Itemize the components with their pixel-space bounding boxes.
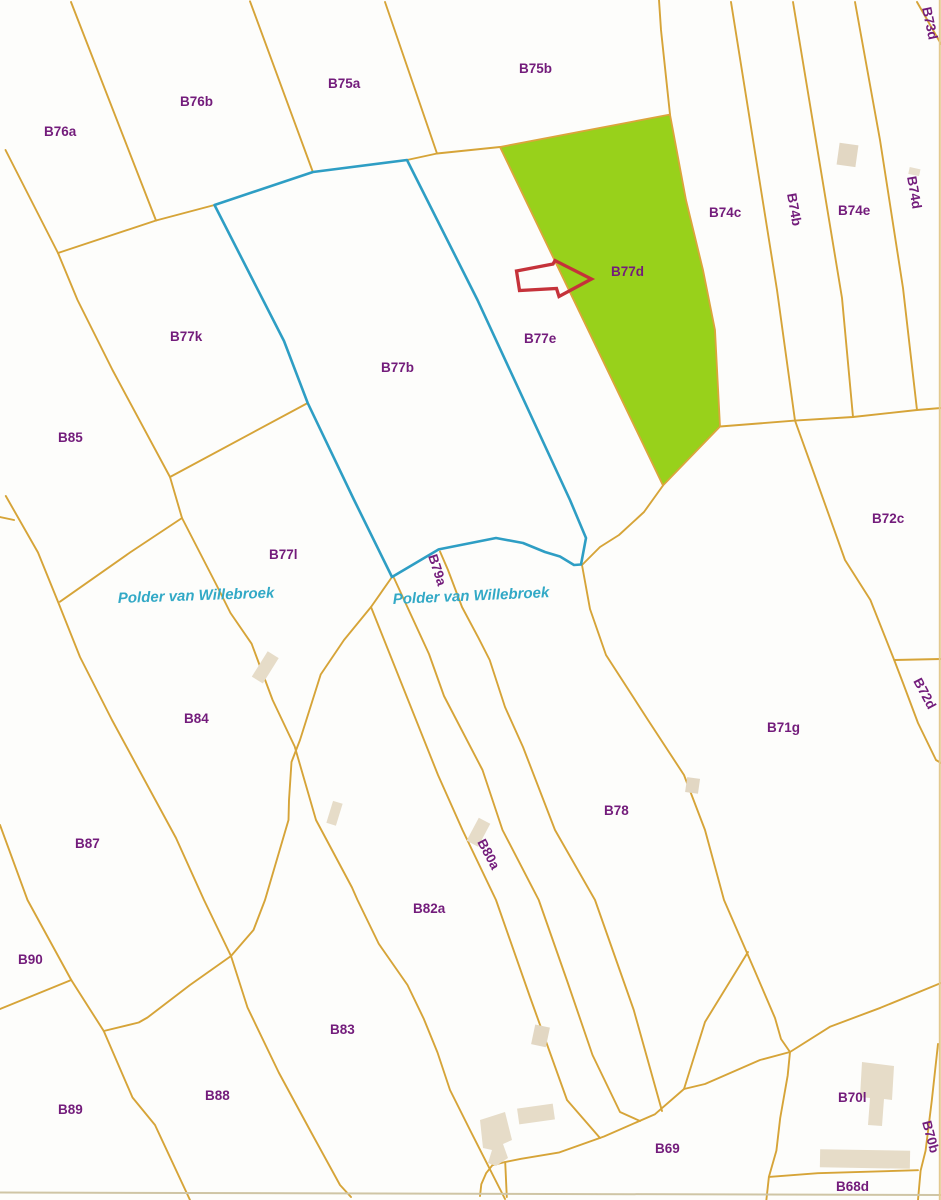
svg-text:B82a: B82a bbox=[413, 901, 446, 916]
svg-text:B88: B88 bbox=[205, 1088, 230, 1103]
svg-text:B89: B89 bbox=[58, 1102, 83, 1117]
svg-text:B77d: B77d bbox=[611, 264, 644, 279]
svg-text:B72c: B72c bbox=[872, 511, 905, 526]
svg-text:B68d: B68d bbox=[836, 1179, 869, 1194]
svg-text:B74e: B74e bbox=[838, 203, 871, 218]
svg-text:B77e: B77e bbox=[524, 331, 557, 346]
svg-text:B69: B69 bbox=[655, 1141, 680, 1156]
svg-text:B87: B87 bbox=[75, 836, 100, 851]
svg-text:B70l: B70l bbox=[838, 1090, 867, 1105]
svg-text:B75a: B75a bbox=[328, 76, 361, 91]
svg-text:B71g: B71g bbox=[767, 720, 800, 735]
svg-text:B76b: B76b bbox=[180, 94, 213, 109]
svg-text:B77k: B77k bbox=[170, 329, 203, 344]
svg-text:B77l: B77l bbox=[269, 547, 298, 562]
svg-text:B83: B83 bbox=[330, 1022, 355, 1037]
svg-text:B78: B78 bbox=[604, 803, 629, 818]
svg-text:B85: B85 bbox=[58, 430, 83, 445]
svg-text:B74c: B74c bbox=[709, 205, 742, 220]
svg-text:B90: B90 bbox=[18, 952, 43, 967]
svg-text:B76a: B76a bbox=[44, 124, 77, 139]
svg-text:B77b: B77b bbox=[381, 360, 414, 375]
svg-text:B75b: B75b bbox=[519, 61, 552, 76]
svg-text:B84: B84 bbox=[184, 711, 209, 726]
